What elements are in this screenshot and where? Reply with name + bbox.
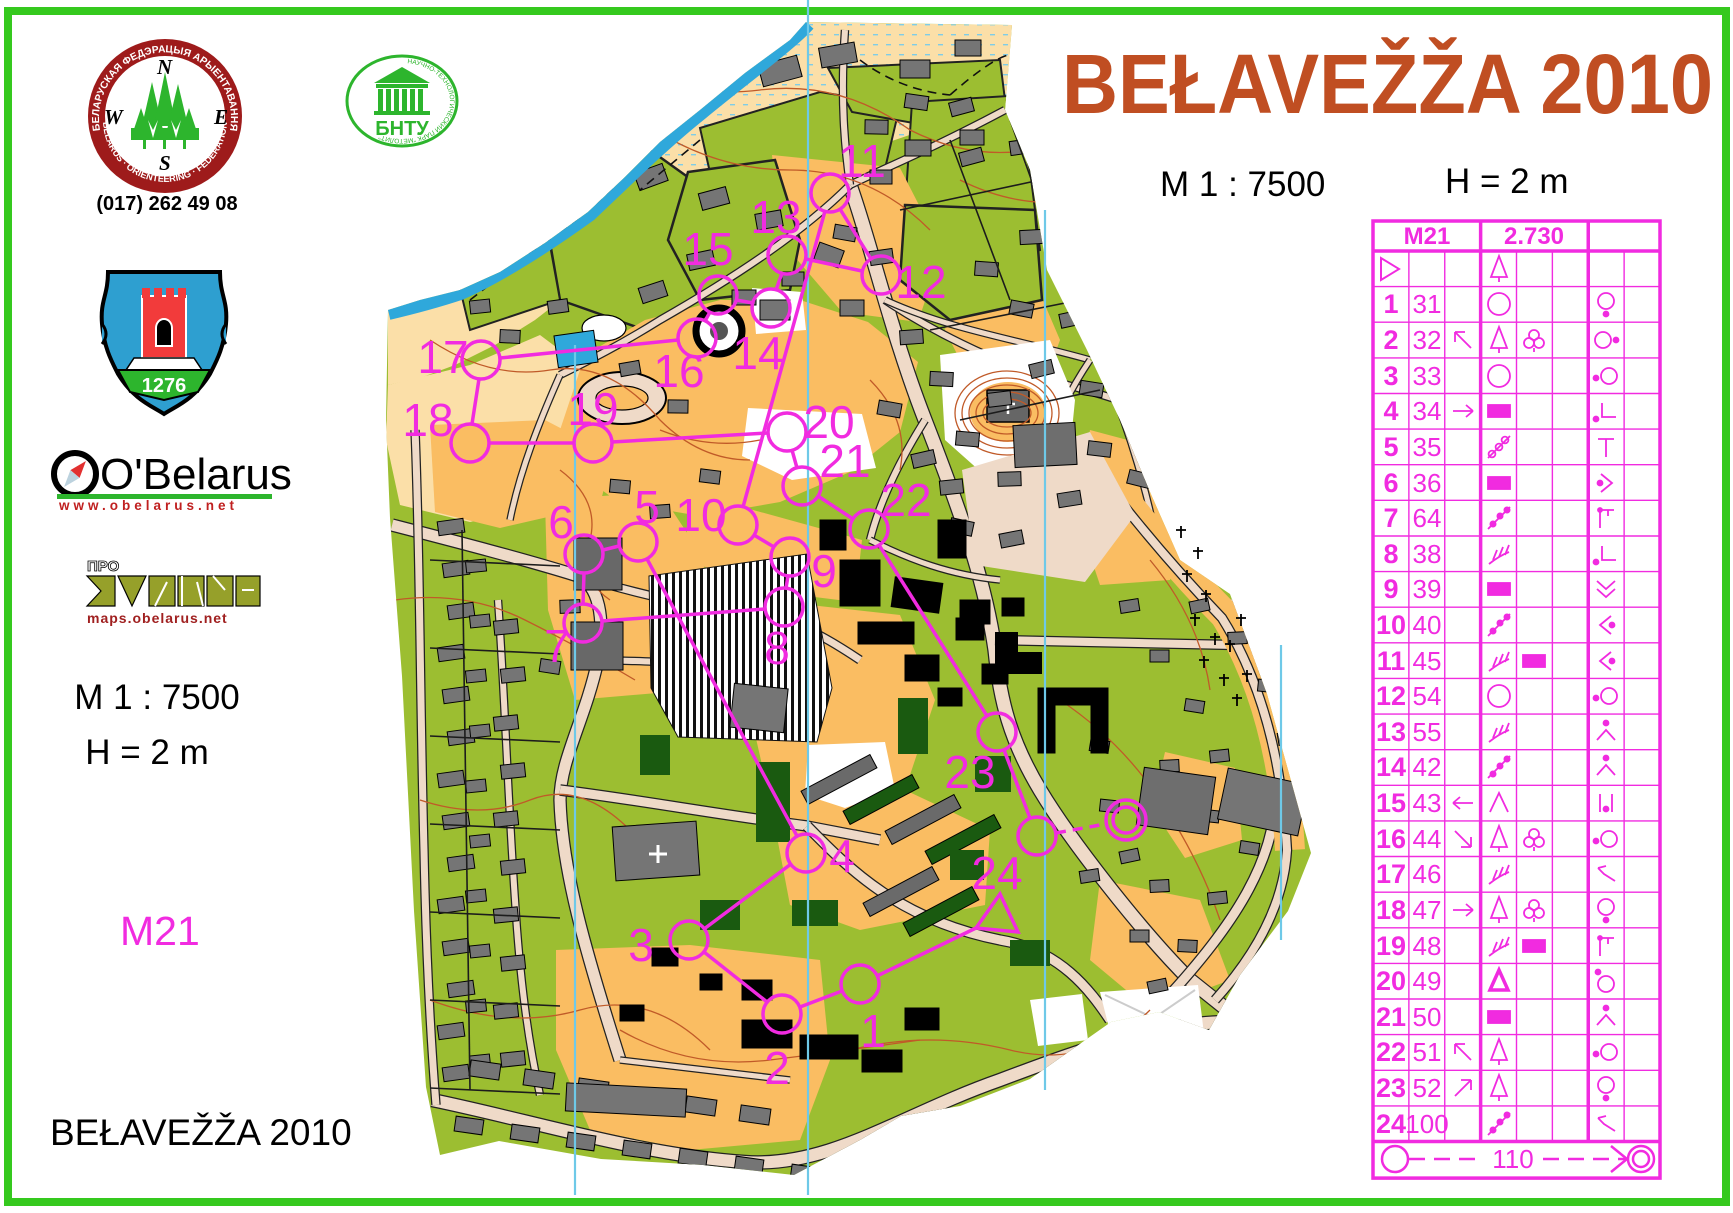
svg-text:50: 50 [1413,1002,1442,1032]
svg-text:46: 46 [1413,859,1442,889]
svg-text:16: 16 [1376,824,1406,854]
svg-text:18: 18 [402,394,453,446]
svg-text:23: 23 [1376,1073,1406,1103]
svg-text:54: 54 [1413,681,1442,711]
svg-text:15: 15 [1376,788,1406,818]
svg-text:64: 64 [1413,503,1442,533]
svg-text:15: 15 [682,223,733,275]
svg-text:8: 8 [1383,539,1398,569]
svg-text:9: 9 [811,545,837,597]
svg-text:34: 34 [1413,396,1442,426]
svg-text:100: 100 [1405,1109,1448,1139]
svg-text:5: 5 [634,481,660,533]
svg-text:2: 2 [1383,325,1398,355]
svg-text:44: 44 [1413,824,1442,854]
svg-text:31: 31 [1413,289,1442,319]
svg-text:13: 13 [1376,717,1406,747]
svg-text:14: 14 [1376,752,1406,782]
svg-text:8: 8 [764,622,790,674]
svg-text:M21: M21 [1404,223,1451,250]
svg-text:10: 10 [1376,610,1406,640]
svg-text:45: 45 [1413,646,1442,676]
svg-text:51: 51 [1413,1037,1442,1067]
svg-text:21: 21 [1376,1002,1406,1032]
svg-text:33: 33 [1413,361,1442,391]
svg-text:20: 20 [1376,966,1406,996]
svg-text:11: 11 [838,135,886,187]
svg-text:9: 9 [1383,574,1398,604]
svg-text:22: 22 [880,474,931,526]
svg-text:39: 39 [1413,574,1442,604]
svg-text:6: 6 [1383,468,1398,498]
svg-text:23: 23 [944,746,995,798]
svg-text:7: 7 [544,620,570,672]
svg-text:4: 4 [1383,396,1398,426]
svg-text:17: 17 [417,331,468,383]
svg-text:10: 10 [675,489,726,541]
svg-text:22: 22 [1376,1037,1406,1067]
svg-text:110: 110 [1492,1144,1533,1174]
svg-text:24: 24 [971,847,1022,899]
svg-text:1: 1 [1383,289,1398,319]
svg-text:40: 40 [1413,610,1442,640]
svg-text:21: 21 [819,435,870,487]
svg-text:2: 2 [764,1042,790,1094]
svg-text:55: 55 [1413,717,1442,747]
svg-text:47: 47 [1413,895,1442,925]
svg-text:11: 11 [1377,646,1406,676]
svg-text:14: 14 [732,327,783,379]
svg-text:32: 32 [1413,325,1442,355]
svg-text:5: 5 [1383,432,1398,462]
svg-text:19: 19 [1376,931,1406,961]
svg-text:2.730: 2.730 [1504,223,1564,250]
svg-text:18: 18 [1376,895,1406,925]
svg-text:7: 7 [1383,503,1398,533]
svg-text:52: 52 [1413,1073,1442,1103]
svg-text:19: 19 [567,383,618,435]
svg-text:1: 1 [860,1005,886,1057]
svg-text:49: 49 [1413,966,1442,996]
svg-text:36: 36 [1413,468,1442,498]
svg-text:24: 24 [1376,1109,1406,1139]
svg-text:6: 6 [548,496,574,548]
svg-text:12: 12 [1376,681,1406,711]
svg-text:16: 16 [653,345,704,397]
svg-text:13: 13 [750,191,801,243]
svg-text:3: 3 [1383,361,1398,391]
svg-text:3: 3 [628,919,654,971]
svg-text:12: 12 [895,256,946,308]
svg-text:17: 17 [1376,859,1406,889]
svg-text:48: 48 [1413,931,1442,961]
svg-text:38: 38 [1413,539,1442,569]
svg-text:35: 35 [1413,432,1442,462]
svg-text:42: 42 [1413,752,1442,782]
svg-text:43: 43 [1413,788,1442,818]
svg-text:4: 4 [829,830,855,882]
